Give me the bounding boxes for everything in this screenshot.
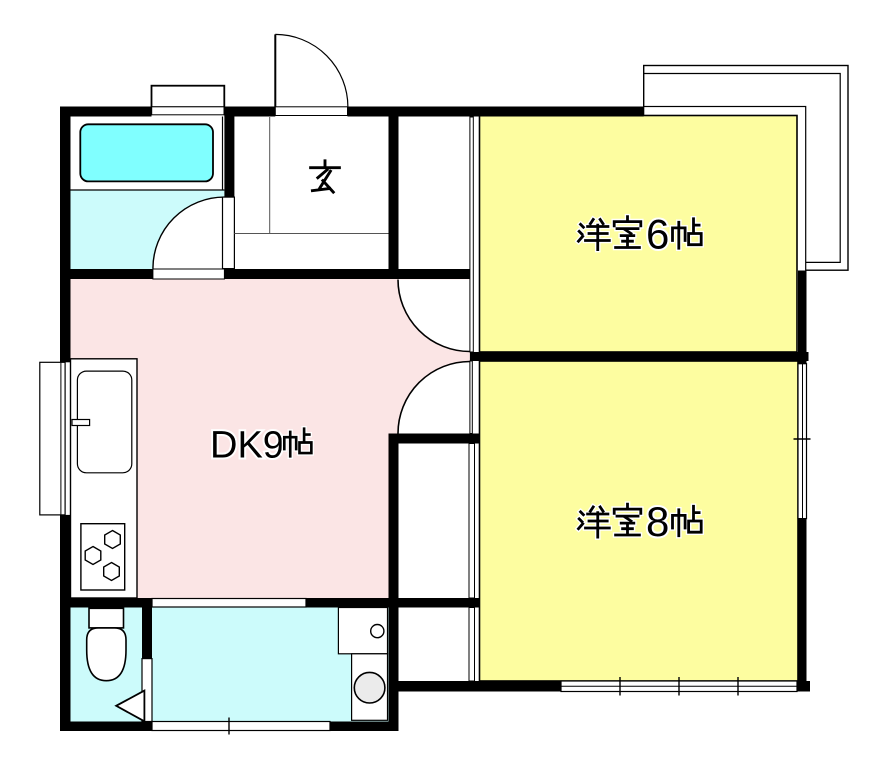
svg-text:DK9: DK9 (210, 425, 284, 467)
svg-text:8: 8 (646, 498, 669, 545)
svg-text:6: 6 (646, 211, 669, 258)
